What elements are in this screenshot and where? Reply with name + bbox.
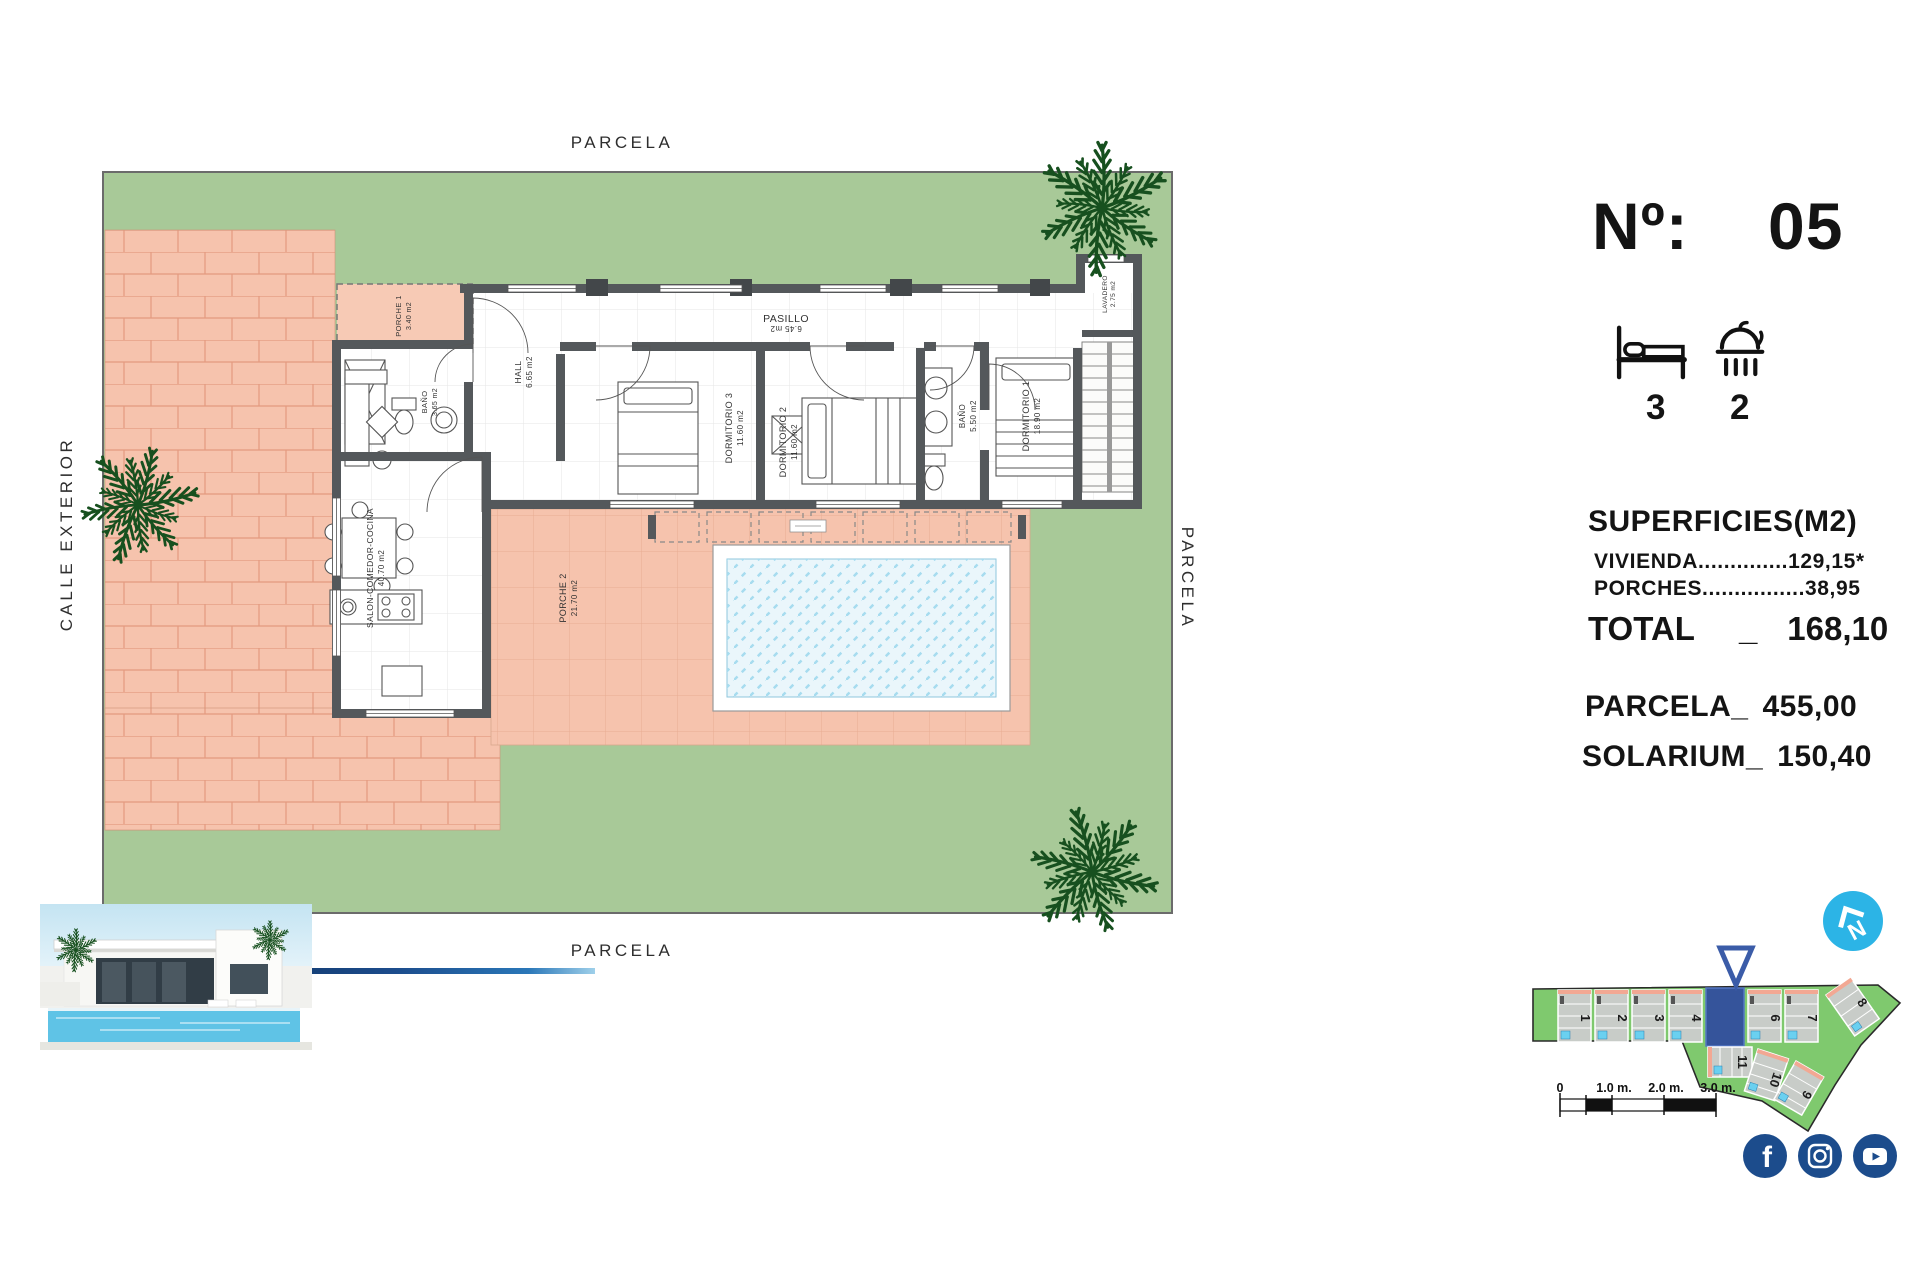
svg-text:1: 1	[1578, 1014, 1593, 1021]
instagram-icon[interactable]	[1797, 1133, 1843, 1179]
vivienda-line: VIVIENDA..............129,15*	[1594, 550, 1865, 574]
svg-text:BAÑO: BAÑO	[420, 391, 429, 414]
solarium-value: 150,40	[1777, 740, 1872, 774]
parcela-label-right: PARCELA	[1178, 527, 1197, 630]
total-value: 168,10	[1787, 610, 1888, 648]
selected-plot	[1706, 988, 1744, 1046]
svg-text:PORCHE 2: PORCHE 2	[558, 573, 568, 622]
social-links: f	[1742, 1133, 1898, 1179]
svg-text:2.0 m.: 2.0 m.	[1648, 1081, 1683, 1095]
floor-plan: PORCHE 1 3.40 m2 BAÑO 3.65 m2 HALL 6.65 …	[30, 120, 1250, 1000]
svg-text:f: f	[1762, 1141, 1773, 1174]
bed-count: 3	[1646, 388, 1665, 428]
svg-text:11.60 m2: 11.60 m2	[736, 410, 745, 446]
svg-text:2: 2	[1615, 1014, 1630, 1021]
swimming-pool	[713, 545, 1010, 711]
svg-text:PASILLO: PASILLO	[763, 313, 809, 325]
solarium-row: SOLARIUM_ 150,40	[1582, 740, 1872, 774]
bath-count: 2	[1730, 388, 1749, 428]
svg-text:11: 11	[1735, 1055, 1750, 1069]
svg-text:HALL: HALL	[513, 361, 523, 384]
bed-icon	[1612, 322, 1690, 380]
surfaces-title: SUPERFICIES(M2)	[1588, 505, 1857, 539]
svg-text:3: 3	[1652, 1014, 1667, 1021]
total-row: TOTAL _ 168,10	[1588, 610, 1888, 648]
shower-icon	[1708, 318, 1772, 380]
svg-text:3.65 m2: 3.65 m2	[432, 388, 439, 416]
unit-number-label: Nº:	[1592, 188, 1689, 264]
porche1-area	[337, 284, 473, 346]
villa-photo	[40, 904, 312, 1050]
svg-text:0: 0	[1557, 1081, 1564, 1095]
scale-bar: 0 1.0 m. 2.0 m. 3.0 m.	[1557, 1081, 1736, 1117]
svg-text:2.75 m2: 2.75 m2	[1110, 281, 1117, 307]
svg-text:11.60 m2: 11.60 m2	[790, 424, 799, 460]
svg-text:PORCHE 1: PORCHE 1	[394, 295, 403, 337]
svg-text:DORMITORIO 2: DORMITORIO 2	[778, 407, 788, 478]
parcela-value: 455,00	[1762, 690, 1857, 724]
svg-text:4: 4	[1689, 1014, 1704, 1022]
svg-text:DORMITORIO 1: DORMITORIO 1	[1021, 381, 1031, 452]
svg-text:1.0 m.: 1.0 m.	[1596, 1081, 1631, 1095]
svg-text:40.70 m2: 40.70 m2	[377, 550, 386, 587]
svg-text:BAÑO: BAÑO	[958, 404, 967, 428]
stairs	[1082, 342, 1138, 492]
svg-text:7: 7	[1805, 1014, 1820, 1021]
parcela-label-top: PARCELA	[571, 133, 674, 152]
unit-number-value: 05	[1768, 188, 1843, 264]
parcela-row: PARCELA_ 455,00	[1585, 690, 1857, 724]
solarium-label: SOLARIUM_	[1582, 740, 1763, 774]
calle-exterior-label: CALLE EXTERIOR	[57, 437, 76, 632]
svg-text:21.70 m2: 21.70 m2	[570, 580, 579, 617]
porches-line: PORCHES................38,95	[1594, 577, 1861, 601]
parcela-label: PARCELA_	[1585, 690, 1748, 724]
svg-text:6.45 m2: 6.45 m2	[770, 324, 802, 333]
selected-plot-marker	[1720, 948, 1752, 985]
total-label: TOTAL	[1588, 610, 1695, 648]
total-separator: _	[1739, 610, 1757, 648]
svg-text:LAVADERO: LAVADERO	[1102, 275, 1109, 313]
svg-text:3.0 m.: 3.0 m.	[1700, 1081, 1735, 1095]
svg-text:SALON-COMEDOR-COCINA: SALON-COMEDOR-COCINA	[365, 508, 375, 628]
youtube-icon[interactable]	[1852, 1133, 1898, 1179]
svg-text:5.50 m2: 5.50 m2	[969, 400, 978, 432]
svg-text:6: 6	[1768, 1014, 1783, 1021]
site-plan: 1 2 3 4 6 7 8 11 10 9 0 1.0 m. 2.0 m. 3.…	[1530, 935, 1920, 1135]
parcela-label-bottom: PARCELA	[571, 941, 674, 960]
svg-text:DORMITORIO 3: DORMITORIO 3	[724, 393, 734, 464]
svg-text:18.90 m2: 18.90 m2	[1033, 398, 1042, 435]
facebook-icon[interactable]: f	[1742, 1133, 1788, 1179]
svg-text:6.65 m2: 6.65 m2	[525, 356, 534, 388]
svg-text:3.40 m2: 3.40 m2	[406, 302, 413, 330]
